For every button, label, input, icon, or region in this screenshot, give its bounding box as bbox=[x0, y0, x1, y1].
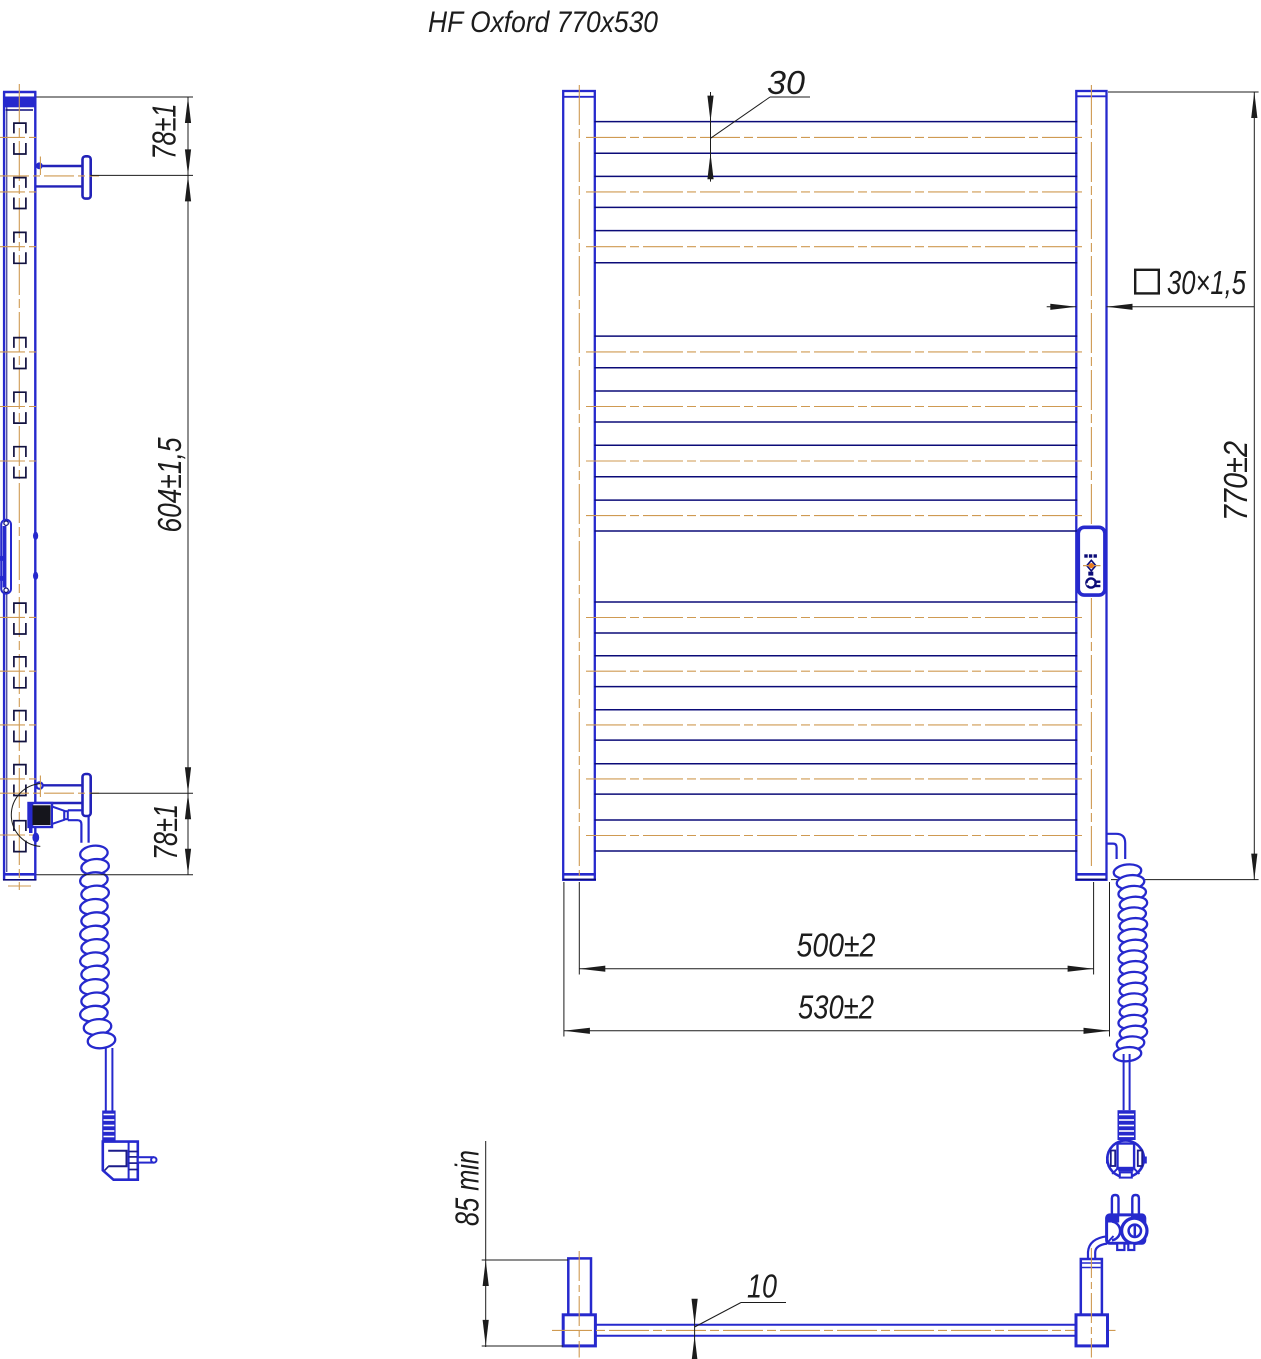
svg-text:78±1: 78±1 bbox=[145, 104, 182, 160]
svg-text:10: 10 bbox=[747, 1268, 778, 1305]
svg-text:78±1: 78±1 bbox=[147, 804, 184, 860]
svg-text:HF Oxford 770x530: HF Oxford 770x530 bbox=[428, 6, 658, 39]
svg-text:85 min: 85 min bbox=[449, 1150, 486, 1226]
svg-text:530±2: 530±2 bbox=[798, 989, 874, 1026]
svg-text:770±2: 770±2 bbox=[1217, 441, 1254, 521]
svg-text:500±2: 500±2 bbox=[797, 927, 876, 964]
svg-text:30×1,5: 30×1,5 bbox=[1167, 264, 1246, 301]
svg-text:30: 30 bbox=[767, 64, 806, 101]
svg-text:604±1,5: 604±1,5 bbox=[151, 437, 188, 533]
